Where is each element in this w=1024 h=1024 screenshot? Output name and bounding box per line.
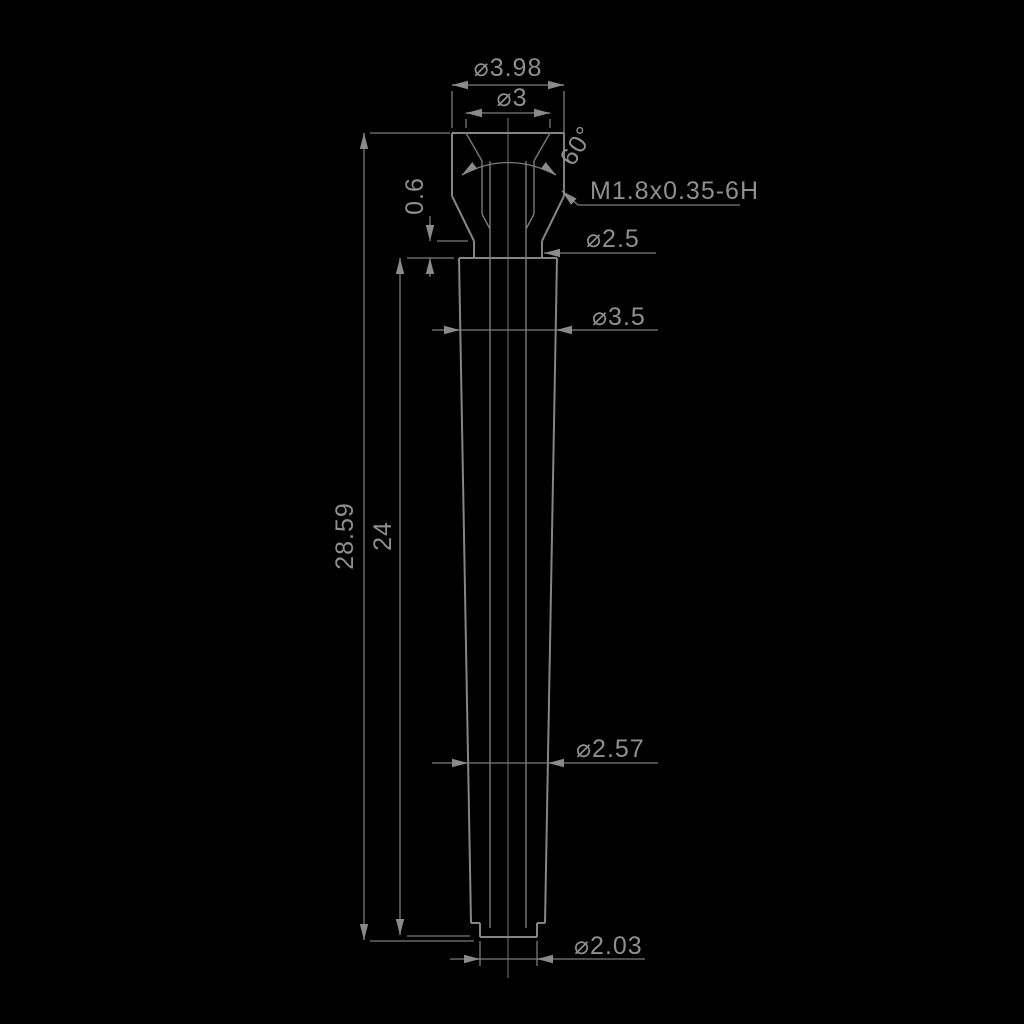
dim-countersink-angle: 60° [462, 121, 600, 175]
dim-label: ⌀2.5 [586, 225, 640, 253]
dim-label: ⌀3 [497, 84, 528, 112]
dim-body-major-diameter: ⌀3.5 [432, 303, 658, 331]
dim-thread-callout: M1.8x0.35-6H [562, 177, 759, 205]
part-geometry [452, 118, 564, 978]
technical-drawing: ⌀3.98 ⌀3 60° M1.8x0.35-6H 0.6 [0, 0, 1024, 1024]
dim-neck-diameter: ⌀2.5 [544, 225, 656, 253]
dim-label: M1.8x0.35-6H [590, 177, 759, 205]
dim-tip-diameter: ⌀2.03 [450, 932, 645, 966]
ext-lines [430, 216, 468, 277]
dim-collar-height: 0.6 [401, 177, 468, 277]
dim-label: ⌀3.98 [474, 54, 543, 82]
dim-label: 60° [555, 121, 600, 170]
dim-label: ⌀2.03 [574, 932, 643, 960]
dim-body-minor-diameter: ⌀2.57 [432, 735, 658, 763]
dim-label: 0.6 [401, 177, 429, 215]
dim-body-length: 24 [369, 258, 470, 936]
dim-label: 24 [369, 521, 397, 551]
dim-line [400, 258, 470, 936]
dim-label: ⌀3.5 [592, 303, 646, 331]
dim-overall-length: 28.59 [331, 133, 474, 941]
drawing-canvas: ⌀3.98 ⌀3 60° M1.8x0.35-6H 0.6 [0, 0, 1024, 1024]
dim-label: 28.59 [331, 502, 359, 570]
angle-arc [462, 163, 556, 176]
dim-label: ⌀2.57 [576, 735, 645, 763]
